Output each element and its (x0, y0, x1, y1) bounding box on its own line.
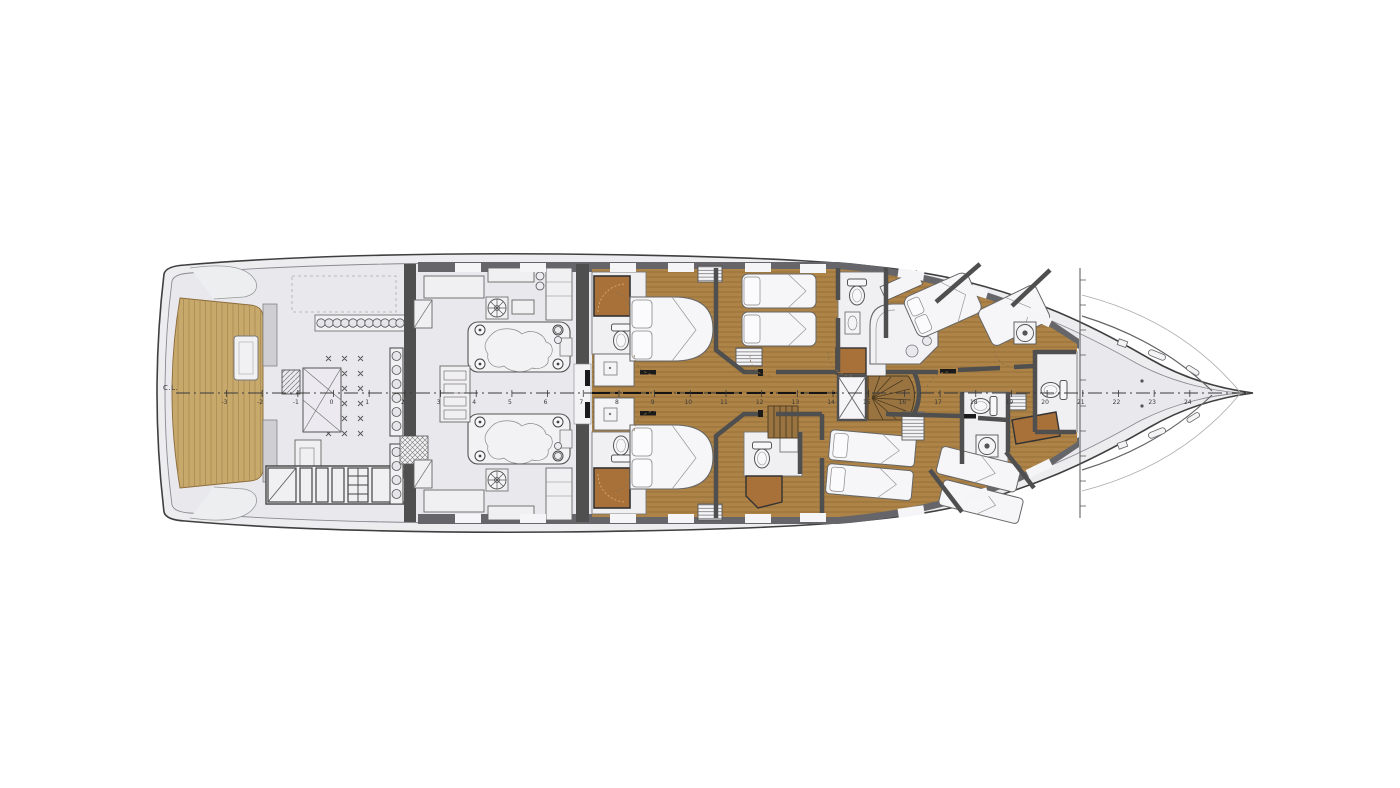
station-label: 20 (1041, 399, 1049, 406)
deck-fitting (1140, 379, 1143, 382)
stairs-down (768, 406, 798, 438)
panel-bottom (546, 468, 572, 520)
station-label: 2 (401, 399, 405, 406)
station-label: 22 (1113, 399, 1121, 406)
aft-lockers (266, 466, 408, 504)
station-label: 17 (934, 399, 942, 406)
washing-machine-icon (976, 435, 998, 457)
deck-fitting (1140, 404, 1143, 407)
centerline-label: C.L. (163, 384, 178, 392)
station-label: 21 (1077, 399, 1085, 406)
void-box (838, 376, 866, 420)
vip-bed-bottom (630, 425, 713, 489)
station-label: 1 (365, 399, 369, 406)
vip-bed-top (630, 297, 713, 361)
aft-hatch (282, 370, 300, 394)
station-label: 13 (792, 399, 800, 406)
station-label: 16 (899, 399, 907, 406)
sink-icon (845, 312, 860, 334)
station-label: 7 (579, 399, 583, 406)
muffler-top (424, 276, 484, 298)
shower-bottom (594, 468, 630, 508)
aft-stairs (303, 368, 341, 432)
station-label: 19 (1006, 399, 1014, 406)
station-label: 12 (756, 399, 764, 406)
station-label: 3 (437, 399, 441, 406)
station-label: 24 (1184, 399, 1192, 406)
station-label: 9 (651, 399, 655, 406)
station-label: -1 (293, 399, 299, 406)
station-label: 15 (863, 399, 871, 406)
muffler-bottom (424, 490, 484, 512)
transom-locker-top (263, 304, 277, 366)
station-label: 14 (827, 399, 835, 406)
station-label: 8 (615, 399, 619, 406)
station-label: 11 (720, 399, 728, 406)
shower-top (594, 276, 630, 316)
station-label: 6 (544, 399, 548, 406)
station-label: 18 (970, 399, 978, 406)
station-label: -2 (257, 399, 263, 406)
yacht-deck-plan: C.L. -3-2-101234567891011121314151617181… (0, 0, 1400, 788)
fuel-manifold (440, 366, 470, 422)
fender-row (315, 315, 405, 331)
station-label: -3 (221, 399, 227, 406)
deck-plan-drawing: C.L. -3-2-101234567891011121314151617181… (0, 0, 1400, 788)
fender-rack (390, 348, 403, 504)
platform-hatch (234, 336, 258, 380)
station-label: 4 (472, 399, 476, 406)
door-leaf (585, 370, 590, 386)
station-label: 23 (1148, 399, 1156, 406)
engine-fan-icon (486, 297, 508, 319)
station-label: 0 (330, 399, 334, 406)
washing-machine-icon (1014, 322, 1036, 344)
sink-icon (780, 438, 798, 452)
panel-top (546, 268, 572, 320)
engine-fan-icon (486, 469, 508, 491)
porthole-icon (923, 337, 932, 346)
station-label: 5 (508, 399, 512, 406)
station-label: 10 (684, 399, 692, 406)
pump-top (512, 300, 534, 314)
door-leaf (585, 402, 590, 418)
shower-twin-top (836, 348, 866, 374)
porthole-icon (906, 345, 918, 357)
